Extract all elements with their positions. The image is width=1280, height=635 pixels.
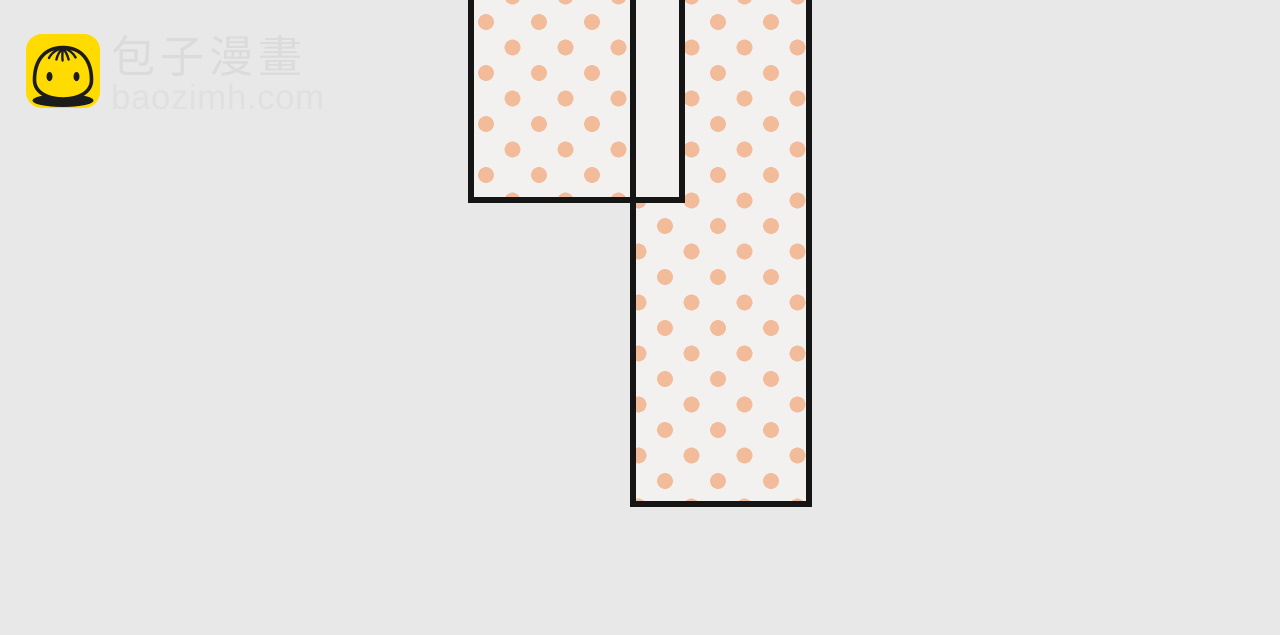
site-domain: baozimh.com bbox=[111, 81, 325, 115]
site-name: 包子漫畫 bbox=[111, 35, 325, 81]
site-watermark: 包子漫畫 baozimh.com bbox=[26, 34, 325, 115]
baozi-bun-icon bbox=[26, 34, 100, 108]
comic-page: 包子漫畫 baozimh.com bbox=[0, 0, 1280, 635]
comic-panel-gutter bbox=[630, 0, 685, 203]
comic-panel-left bbox=[468, 0, 636, 203]
site-watermark-text: 包子漫畫 baozimh.com bbox=[111, 35, 325, 115]
